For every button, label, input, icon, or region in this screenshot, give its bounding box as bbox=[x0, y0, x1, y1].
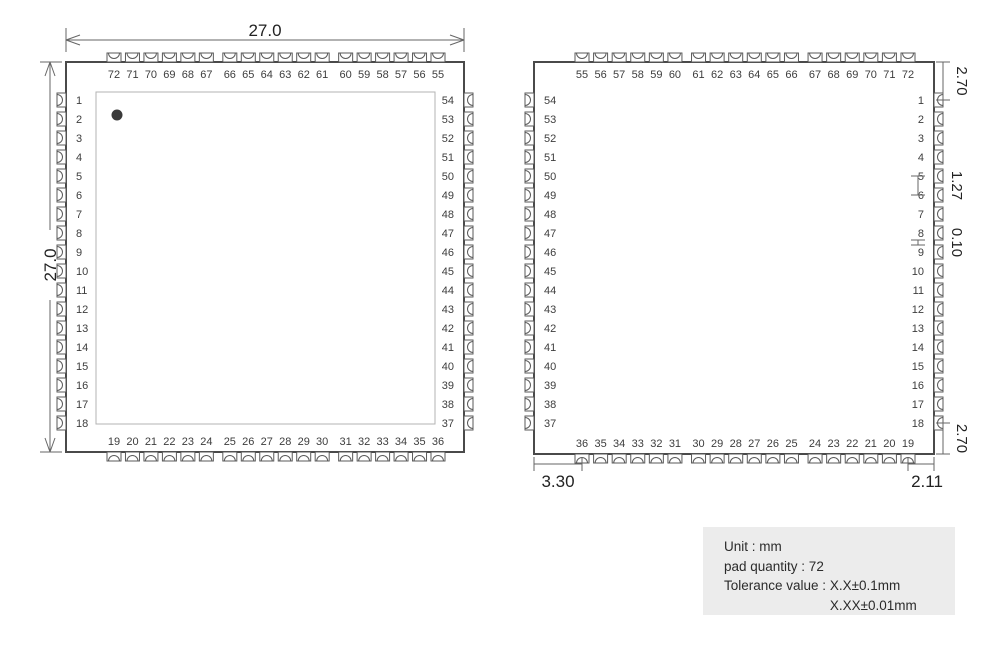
pad-60 bbox=[668, 53, 682, 62]
pin-label-53: 53 bbox=[544, 114, 556, 126]
pin-label-68: 68 bbox=[828, 69, 840, 81]
pad-27 bbox=[747, 454, 761, 463]
pin-label-37: 37 bbox=[442, 418, 454, 430]
pin-label-50: 50 bbox=[544, 171, 556, 183]
pin-label-32: 32 bbox=[650, 438, 662, 450]
pin-label-54: 54 bbox=[442, 95, 454, 107]
pin-label-30: 30 bbox=[316, 436, 328, 448]
pin-label-60: 60 bbox=[340, 69, 352, 81]
pin-label-1: 1 bbox=[76, 95, 82, 107]
pin-label-33: 33 bbox=[376, 436, 388, 448]
pad-56 bbox=[594, 53, 608, 62]
pin-label-59: 59 bbox=[650, 69, 662, 81]
pad-7 bbox=[57, 207, 66, 221]
note-tolerance: Tolerance value : X.X±0.1mm X.XX±0.01mm bbox=[724, 576, 955, 615]
pin-label-72: 72 bbox=[902, 69, 914, 81]
pin-label-39: 39 bbox=[544, 380, 556, 392]
pin-label-12: 12 bbox=[912, 304, 924, 316]
pin-label-42: 42 bbox=[544, 323, 556, 335]
pin-label-63: 63 bbox=[730, 69, 742, 81]
pin-label-49: 49 bbox=[442, 190, 454, 202]
pad-65 bbox=[241, 53, 255, 62]
pad-51 bbox=[464, 150, 473, 164]
pin-label-61: 61 bbox=[316, 69, 328, 81]
pin-label-26: 26 bbox=[767, 438, 779, 450]
pad-4 bbox=[57, 150, 66, 164]
pad-6 bbox=[934, 188, 943, 202]
pad-66 bbox=[784, 53, 798, 62]
pin-label-28: 28 bbox=[730, 438, 742, 450]
pin-label-22: 22 bbox=[163, 436, 175, 448]
pad-64 bbox=[260, 53, 274, 62]
pad-19 bbox=[107, 452, 121, 461]
pad-63 bbox=[278, 53, 292, 62]
pin-label-3: 3 bbox=[76, 133, 82, 145]
pad-57 bbox=[612, 53, 626, 62]
pin-label-43: 43 bbox=[544, 304, 556, 316]
pad-3 bbox=[934, 131, 943, 145]
pin-label-41: 41 bbox=[442, 342, 454, 354]
pad-71 bbox=[125, 53, 139, 62]
pad-12 bbox=[57, 302, 66, 316]
pad-27 bbox=[260, 452, 274, 461]
pad-26 bbox=[241, 452, 255, 461]
pad-14 bbox=[934, 340, 943, 354]
pad-17 bbox=[57, 397, 66, 411]
pad-13 bbox=[934, 321, 943, 335]
pad-16 bbox=[934, 378, 943, 392]
pad-60 bbox=[339, 53, 353, 62]
pin-label-66: 66 bbox=[785, 69, 797, 81]
pad-41 bbox=[464, 340, 473, 354]
pin-label-4: 4 bbox=[918, 152, 924, 164]
pin-label-34: 34 bbox=[613, 438, 625, 450]
pin-label-21: 21 bbox=[865, 438, 877, 450]
dim-pad-gap: 0.10 bbox=[948, 228, 965, 257]
pin-label-16: 16 bbox=[912, 380, 924, 392]
pin-label-15: 15 bbox=[912, 361, 924, 373]
pad-49 bbox=[464, 188, 473, 202]
pin-label-45: 45 bbox=[442, 266, 454, 278]
pad-68 bbox=[181, 53, 195, 62]
pin-label-6: 6 bbox=[76, 190, 82, 202]
pad-59 bbox=[357, 53, 371, 62]
pad-51 bbox=[525, 150, 534, 164]
pad-56 bbox=[413, 53, 427, 62]
pin-label-18: 18 bbox=[76, 418, 88, 430]
pad-15 bbox=[57, 359, 66, 373]
pin-label-27: 27 bbox=[261, 436, 273, 448]
pin-label-56: 56 bbox=[413, 69, 425, 81]
pad-71 bbox=[882, 53, 896, 62]
pin-label-7: 7 bbox=[918, 209, 924, 221]
pad-8 bbox=[57, 226, 66, 240]
pad-3 bbox=[57, 131, 66, 145]
pin-label-47: 47 bbox=[544, 228, 556, 240]
pad-21 bbox=[144, 452, 158, 461]
note-tolerance-label: Tolerance value : bbox=[724, 576, 830, 615]
pin-label-17: 17 bbox=[912, 399, 924, 411]
dim-edge-to-pad36: 3.30 bbox=[541, 472, 574, 491]
pad-31 bbox=[668, 454, 682, 463]
pin-label-42: 42 bbox=[442, 323, 454, 335]
pin-label-25: 25 bbox=[224, 436, 236, 448]
pad-58 bbox=[631, 53, 645, 62]
pin-label-5: 5 bbox=[76, 171, 82, 183]
pad-45 bbox=[464, 264, 473, 278]
pad-22 bbox=[162, 452, 176, 461]
pad-49 bbox=[525, 188, 534, 202]
pad-68 bbox=[827, 53, 841, 62]
pad-72 bbox=[901, 53, 915, 62]
pin-label-19: 19 bbox=[108, 436, 120, 448]
pin-label-55: 55 bbox=[432, 69, 444, 81]
pad-42 bbox=[525, 321, 534, 335]
pad-2 bbox=[934, 112, 943, 126]
pad-16 bbox=[57, 378, 66, 392]
pad-23 bbox=[827, 454, 841, 463]
pad-9 bbox=[934, 245, 943, 259]
pad-4 bbox=[934, 150, 943, 164]
pin-label-15: 15 bbox=[76, 361, 88, 373]
pin-label-64: 64 bbox=[261, 69, 273, 81]
pin-label-36: 36 bbox=[432, 436, 444, 448]
pin-label-44: 44 bbox=[544, 285, 556, 297]
pad-20 bbox=[125, 452, 139, 461]
pin-label-67: 67 bbox=[200, 69, 212, 81]
pin-label-29: 29 bbox=[298, 436, 310, 448]
pad-40 bbox=[525, 359, 534, 373]
pad-65 bbox=[766, 53, 780, 62]
pad-28 bbox=[729, 454, 743, 463]
pin-label-27: 27 bbox=[748, 438, 760, 450]
pin-label-63: 63 bbox=[279, 69, 291, 81]
note-pad-quantity: pad quantity : 72 bbox=[724, 557, 955, 577]
pad-55 bbox=[575, 53, 589, 62]
pad-48 bbox=[525, 207, 534, 221]
pin-label-11: 11 bbox=[913, 285, 924, 297]
pin-label-71: 71 bbox=[126, 69, 138, 81]
pin-label-14: 14 bbox=[912, 342, 924, 354]
pad-69 bbox=[162, 53, 176, 62]
pin-label-40: 40 bbox=[544, 361, 556, 373]
pin-label-5: 5 bbox=[918, 171, 924, 183]
pad-53 bbox=[464, 112, 473, 126]
pin-label-24: 24 bbox=[809, 438, 821, 450]
pad-24 bbox=[199, 452, 213, 461]
pad-61 bbox=[315, 53, 329, 62]
pin-label-21: 21 bbox=[145, 436, 157, 448]
pad-14 bbox=[57, 340, 66, 354]
pad-50 bbox=[464, 169, 473, 183]
dim-height-label: 27.0 bbox=[41, 248, 60, 281]
pad-34 bbox=[612, 454, 626, 463]
note-unit: Unit : mm bbox=[724, 537, 955, 557]
pin-label-3: 3 bbox=[918, 133, 924, 145]
pin-label-69: 69 bbox=[163, 69, 175, 81]
pin-label-34: 34 bbox=[395, 436, 407, 448]
pin-label-43: 43 bbox=[442, 304, 454, 316]
pin-label-6: 6 bbox=[918, 190, 924, 202]
pad-41 bbox=[525, 340, 534, 354]
pad-43 bbox=[525, 302, 534, 316]
pin-label-38: 38 bbox=[442, 399, 454, 411]
pin-label-35: 35 bbox=[594, 438, 606, 450]
pad-44 bbox=[525, 283, 534, 297]
pad-7 bbox=[934, 207, 943, 221]
pad-30 bbox=[315, 452, 329, 461]
pad-62 bbox=[710, 53, 724, 62]
pad-8 bbox=[934, 226, 943, 240]
pad-38 bbox=[525, 397, 534, 411]
pad-20 bbox=[882, 454, 896, 463]
pad-1 bbox=[57, 93, 66, 107]
pad-57 bbox=[394, 53, 408, 62]
pin-label-38: 38 bbox=[544, 399, 556, 411]
pad-55 bbox=[431, 53, 445, 62]
pin-label-47: 47 bbox=[442, 228, 454, 240]
pin-label-20: 20 bbox=[126, 436, 138, 448]
pad-15 bbox=[934, 359, 943, 373]
pin-label-51: 51 bbox=[544, 152, 556, 164]
pad-70 bbox=[144, 53, 158, 62]
pin-label-32: 32 bbox=[358, 436, 370, 448]
pin-label-70: 70 bbox=[145, 69, 157, 81]
pad-67 bbox=[808, 53, 822, 62]
package-bottom-view: 5556575859606162636465666768697071723635… bbox=[525, 53, 943, 463]
pin-label-49: 49 bbox=[544, 190, 556, 202]
pin-label-52: 52 bbox=[544, 133, 556, 145]
pin-label-37: 37 bbox=[544, 418, 556, 430]
pin-label-12: 12 bbox=[76, 304, 88, 316]
pin-label-45: 45 bbox=[544, 266, 556, 278]
pad-11 bbox=[934, 283, 943, 297]
pin-label-46: 46 bbox=[442, 247, 454, 259]
pin-label-48: 48 bbox=[442, 209, 454, 221]
note-tolerance-value-2: X.XX±0.01mm bbox=[830, 596, 917, 616]
pad-13 bbox=[57, 321, 66, 335]
pin-label-54: 54 bbox=[544, 95, 556, 107]
pin-label-4: 4 bbox=[76, 152, 82, 164]
pad-35 bbox=[413, 452, 427, 461]
pin-label-65: 65 bbox=[767, 69, 779, 81]
pad-58 bbox=[376, 53, 390, 62]
pad-67 bbox=[199, 53, 213, 62]
pad-24 bbox=[808, 454, 822, 463]
pad-29 bbox=[297, 452, 311, 461]
pad-52 bbox=[525, 131, 534, 145]
pin-label-66: 66 bbox=[224, 69, 236, 81]
pin-label-36: 36 bbox=[576, 438, 588, 450]
pad-46 bbox=[525, 245, 534, 259]
pin-label-57: 57 bbox=[613, 69, 625, 81]
pin-label-65: 65 bbox=[242, 69, 254, 81]
pad-72 bbox=[107, 53, 121, 62]
pad-37 bbox=[525, 416, 534, 430]
pin-label-29: 29 bbox=[711, 438, 723, 450]
pin-label-23: 23 bbox=[182, 436, 194, 448]
pin-label-39: 39 bbox=[442, 380, 454, 392]
pin-label-56: 56 bbox=[594, 69, 606, 81]
pin-label-51: 51 bbox=[442, 152, 454, 164]
pad-38 bbox=[464, 397, 473, 411]
pin1-indicator-dot bbox=[112, 110, 123, 121]
pin-label-48: 48 bbox=[544, 209, 556, 221]
pad-29 bbox=[710, 454, 724, 463]
pin-label-57: 57 bbox=[395, 69, 407, 81]
pin-label-71: 71 bbox=[883, 69, 895, 81]
pin-label-8: 8 bbox=[918, 228, 924, 240]
pad-44 bbox=[464, 283, 473, 297]
pad-11 bbox=[57, 283, 66, 297]
pin-label-2: 2 bbox=[918, 114, 924, 126]
dim-pad-pitch: 1.27 bbox=[948, 171, 965, 200]
pad-61 bbox=[692, 53, 706, 62]
pad-26 bbox=[766, 454, 780, 463]
pin-label-70: 70 bbox=[865, 69, 877, 81]
pin-label-8: 8 bbox=[76, 228, 82, 240]
pin-label-28: 28 bbox=[279, 436, 291, 448]
pin-label-40: 40 bbox=[442, 361, 454, 373]
dim-pad19-to-edge: 2.11 bbox=[911, 472, 943, 491]
pad-45 bbox=[525, 264, 534, 278]
pin-label-19: 19 bbox=[902, 438, 914, 450]
pad-39 bbox=[525, 378, 534, 392]
pin-label-62: 62 bbox=[298, 69, 310, 81]
pin-label-53: 53 bbox=[442, 114, 454, 126]
pin-label-7: 7 bbox=[76, 209, 82, 221]
pin-label-13: 13 bbox=[76, 323, 88, 335]
pad-63 bbox=[729, 53, 743, 62]
pad-37 bbox=[464, 416, 473, 430]
pin-label-46: 46 bbox=[544, 247, 556, 259]
pad-32 bbox=[357, 452, 371, 461]
pad-54 bbox=[525, 93, 534, 107]
pin-label-25: 25 bbox=[785, 438, 797, 450]
pin-label-16: 16 bbox=[76, 380, 88, 392]
pin-label-31: 31 bbox=[340, 436, 352, 448]
pin-label-9: 9 bbox=[76, 247, 82, 259]
pad-21 bbox=[864, 454, 878, 463]
pad-31 bbox=[339, 452, 353, 461]
pin-label-58: 58 bbox=[376, 69, 388, 81]
pad-66 bbox=[223, 53, 237, 62]
pad-25 bbox=[784, 454, 798, 463]
pad-23 bbox=[181, 452, 195, 461]
pad-43 bbox=[464, 302, 473, 316]
pin-label-52: 52 bbox=[442, 133, 454, 145]
pin-label-11: 11 bbox=[76, 285, 87, 297]
pin-label-55: 55 bbox=[576, 69, 588, 81]
pin-label-31: 31 bbox=[669, 438, 681, 450]
pin-label-69: 69 bbox=[846, 69, 858, 81]
pad-46 bbox=[464, 245, 473, 259]
pin-label-59: 59 bbox=[358, 69, 370, 81]
pin-label-33: 33 bbox=[632, 438, 644, 450]
pin-label-60: 60 bbox=[669, 69, 681, 81]
pin-label-62: 62 bbox=[711, 69, 723, 81]
pin-label-20: 20 bbox=[883, 438, 895, 450]
notes-box: Unit : mm pad quantity : 72 Tolerance va… bbox=[703, 527, 955, 615]
pad-10 bbox=[934, 264, 943, 278]
pad-12 bbox=[934, 302, 943, 316]
pad-22 bbox=[845, 454, 859, 463]
pin-label-13: 13 bbox=[912, 323, 924, 335]
pad-34 bbox=[394, 452, 408, 461]
pad-36 bbox=[431, 452, 445, 461]
pin-label-64: 64 bbox=[748, 69, 760, 81]
pad-28 bbox=[278, 452, 292, 461]
dim-pin18-to-edge: 2.70 bbox=[953, 424, 970, 453]
pad-39 bbox=[464, 378, 473, 392]
pad-25 bbox=[223, 452, 237, 461]
pad-42 bbox=[464, 321, 473, 335]
pin-label-58: 58 bbox=[632, 69, 644, 81]
pad-50 bbox=[525, 169, 534, 183]
pad-5 bbox=[57, 169, 66, 183]
pin-label-2: 2 bbox=[76, 114, 82, 126]
pin-label-23: 23 bbox=[828, 438, 840, 450]
package-top-view: 7271706968676665646362616059585756551920… bbox=[57, 53, 473, 461]
pad-33 bbox=[631, 454, 645, 463]
pad-70 bbox=[864, 53, 878, 62]
pad-47 bbox=[464, 226, 473, 240]
pin-label-22: 22 bbox=[846, 438, 858, 450]
pad-59 bbox=[649, 53, 663, 62]
pin-label-50: 50 bbox=[442, 171, 454, 183]
pin-label-1: 1 bbox=[918, 95, 924, 107]
pad-30 bbox=[692, 454, 706, 463]
pin-label-9: 9 bbox=[918, 247, 924, 259]
pad-40 bbox=[464, 359, 473, 373]
pad-32 bbox=[649, 454, 663, 463]
dim-edge-to-pin1: 2.70 bbox=[953, 66, 970, 95]
pin-label-14: 14 bbox=[76, 342, 88, 354]
pad-35 bbox=[594, 454, 608, 463]
pin-label-18: 18 bbox=[912, 418, 924, 430]
pin-label-24: 24 bbox=[200, 436, 212, 448]
pad-54 bbox=[464, 93, 473, 107]
pad-6 bbox=[57, 188, 66, 202]
pin-label-30: 30 bbox=[692, 438, 704, 450]
pin-label-72: 72 bbox=[108, 69, 120, 81]
pin-label-41: 41 bbox=[544, 342, 556, 354]
datasheet-page: 7271706968676665646362616059585756551920… bbox=[0, 0, 1000, 651]
pin-label-10: 10 bbox=[76, 266, 88, 278]
pin-label-26: 26 bbox=[242, 436, 254, 448]
pad-18 bbox=[57, 416, 66, 430]
pad-17 bbox=[934, 397, 943, 411]
pad-47 bbox=[525, 226, 534, 240]
pad-33 bbox=[376, 452, 390, 461]
pin-label-44: 44 bbox=[442, 285, 454, 297]
dim-width-label: 27.0 bbox=[248, 21, 281, 40]
pad-69 bbox=[845, 53, 859, 62]
pin-label-68: 68 bbox=[182, 69, 194, 81]
pad-52 bbox=[464, 131, 473, 145]
pin-label-67: 67 bbox=[809, 69, 821, 81]
pin-label-17: 17 bbox=[76, 399, 88, 411]
note-tolerance-value-1: X.X±0.1mm bbox=[830, 576, 917, 596]
pin-label-61: 61 bbox=[692, 69, 704, 81]
pin-label-10: 10 bbox=[912, 266, 924, 278]
pad-62 bbox=[297, 53, 311, 62]
pad-64 bbox=[747, 53, 761, 62]
pin-label-35: 35 bbox=[413, 436, 425, 448]
pad-53 bbox=[525, 112, 534, 126]
pad-48 bbox=[464, 207, 473, 221]
pad-2 bbox=[57, 112, 66, 126]
